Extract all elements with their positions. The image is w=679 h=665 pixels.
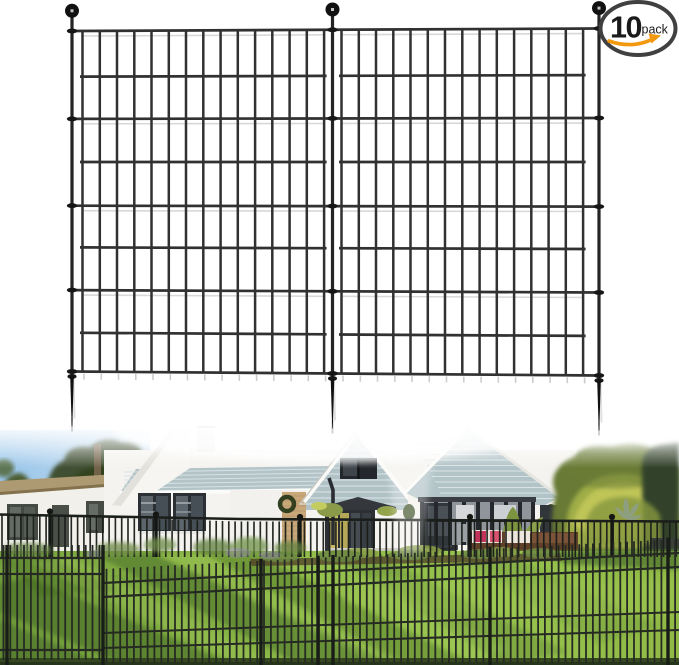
svg-text:10: 10 xyxy=(610,11,641,45)
svg-text:pack: pack xyxy=(642,23,669,37)
